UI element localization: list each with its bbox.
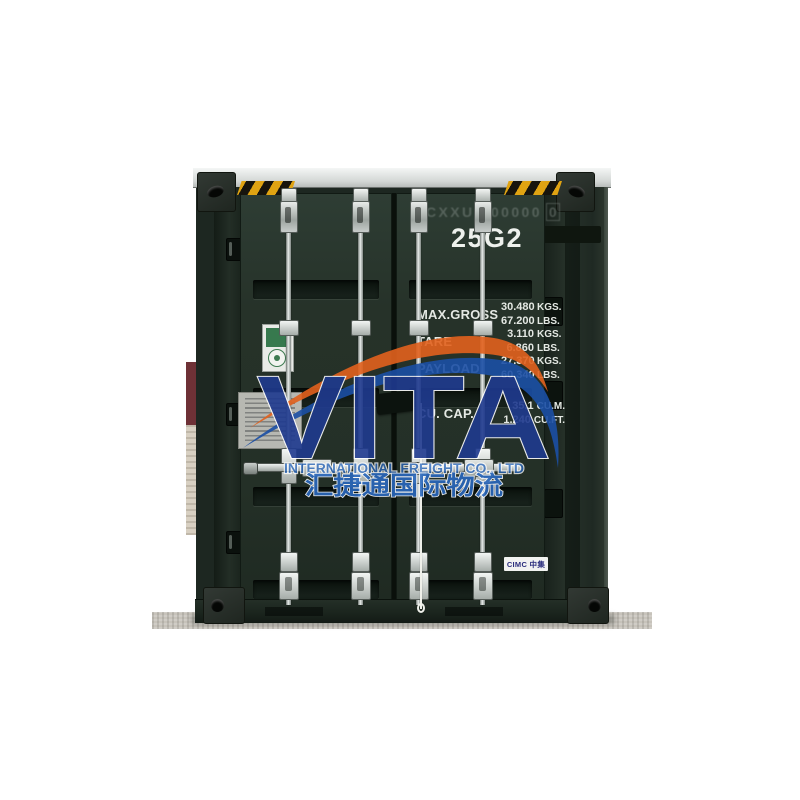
vita-watermark: VITA INTERNATIONAL FREIGHT CO., LTD 汇捷通国… xyxy=(232,318,577,500)
rod-bracket xyxy=(410,201,428,233)
rod-guide xyxy=(352,552,370,572)
rod-bracket xyxy=(474,201,492,233)
rod-cam-bottom xyxy=(351,572,371,600)
rod-cam-bottom xyxy=(409,572,429,600)
rod-guide xyxy=(410,552,428,572)
product-photo: CXXU 0000000 25G2 MAX.GROSS 30.480KGS. 6… xyxy=(0,0,800,800)
rod-bracket xyxy=(280,201,298,233)
rod-guide xyxy=(280,552,298,572)
rod-cam-bottom xyxy=(473,572,493,600)
brand-subtitle-cn: 汇捷通国际物流 xyxy=(305,472,503,500)
rod-cam-bottom xyxy=(279,572,299,600)
rod-bracket xyxy=(352,201,370,233)
rod-guide xyxy=(474,552,492,572)
seal-cord-loop xyxy=(417,603,425,613)
